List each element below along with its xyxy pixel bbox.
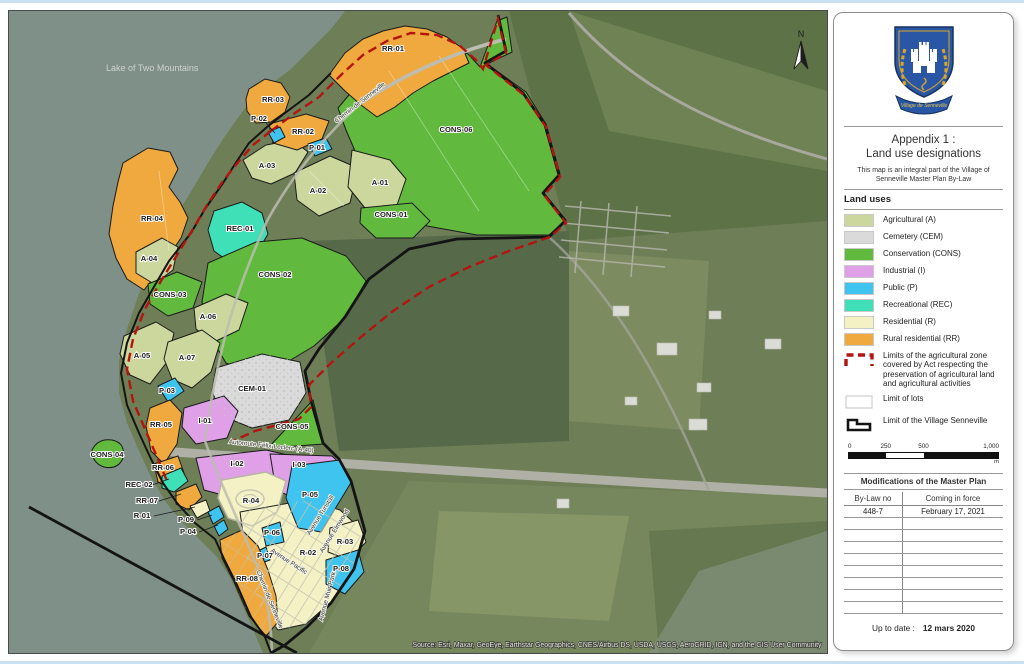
zone-label-R-01: R-01 (134, 511, 151, 520)
table-cell (844, 602, 902, 614)
zone-label-A-06: A-06 (200, 312, 216, 321)
map-subtitle: This map is an integral part of the Vill… (848, 167, 999, 185)
zone-label-A-02: A-02 (310, 186, 326, 195)
scale-segment (849, 453, 886, 458)
zone-label-R-04: R-04 (243, 496, 260, 505)
table-cell (902, 554, 1003, 566)
legend-label: Recreational (REC) (883, 299, 952, 310)
legend-label: Residential (R) (883, 316, 936, 327)
zone-label-RR-01: RR-01 (382, 44, 405, 53)
legend-swatch-lot_line (844, 393, 874, 411)
zone-label-RR-08: RR-08 (236, 574, 258, 583)
zone-label-RR-04: RR-04 (141, 214, 164, 223)
table-cell (902, 542, 1003, 554)
senneville-coat-of-arms: Village de Senneville (844, 23, 1003, 122)
zone-label-A-03: A-03 (259, 161, 275, 170)
legend-swatch-agri_limit (844, 350, 874, 368)
svg-text:N: N (798, 29, 805, 39)
scale-segment (924, 453, 999, 458)
table-cell (902, 518, 1003, 530)
zone-label-P-05: P-05 (302, 490, 319, 499)
table-cell (844, 590, 902, 602)
scale-tick: 1,000 (983, 443, 999, 450)
table-cell (844, 578, 902, 590)
table-cell (844, 554, 902, 566)
legend-label: Limits of the agricultural zone covered … (883, 350, 1003, 389)
table-row (844, 578, 1003, 590)
zone-label-P-03: P-03 (159, 386, 175, 395)
zone-label-P-06: P-06 (264, 528, 280, 537)
land-uses-heading: Land uses (844, 194, 1003, 205)
table-cell (844, 566, 902, 578)
legend-item-industrial: Industrial (I) (844, 265, 1003, 278)
divider (844, 126, 1003, 127)
legend-label: Limit of lots (883, 393, 923, 404)
zone-label-CEM-01: CEM-01 (238, 384, 267, 393)
scale-bar-line (848, 452, 999, 459)
zone-label-CONS-05: CONS-05 (276, 422, 310, 431)
table-row: 448-7February 17, 2021 (844, 506, 1003, 518)
zone-label-R-02: R-02 (300, 548, 316, 557)
land-use-map: RR-01RR-03P-02RR-02P-01A-03A-02A-01CONS-… (9, 11, 827, 653)
divider (844, 189, 1003, 190)
legend-swatch (844, 231, 874, 244)
table-cell: February 17, 2021 (902, 506, 1003, 518)
table-row (844, 566, 1003, 578)
legend-item-rural: Rural residential (RR) (844, 333, 1003, 346)
table-cell (844, 518, 902, 530)
legend-swatch-village_limit (844, 415, 874, 433)
zone-label-P-04: P-04 (180, 527, 197, 536)
zone-label-A-05: A-05 (134, 351, 151, 360)
zone-label-RR-03: RR-03 (262, 95, 284, 104)
table-row (844, 590, 1003, 602)
zone-label-REC-01: REC-01 (226, 224, 254, 233)
zone-label-CONS-06: CONS-06 (440, 125, 473, 134)
up-to-date: Up to date :12 mars 2020 (844, 623, 1003, 633)
table-cell (902, 590, 1003, 602)
table-cell: 448-7 (844, 506, 902, 518)
legend-list: Agricultural (A)Cemetery (CEM)Conservati… (844, 214, 1003, 433)
legend-swatch (844, 316, 874, 329)
map-canvas: RR-01RR-03P-02RR-02P-01A-03A-02A-01CONS-… (8, 10, 828, 654)
legend-item-residential: Residential (R) (844, 316, 1003, 329)
lake-label: Lake of Two Mountains (106, 63, 199, 73)
legend-label: Industrial (I) (883, 265, 925, 276)
zone-label-CONS-04: CONS-04 (91, 450, 125, 459)
zone-label-A-04: A-04 (141, 254, 158, 263)
modifications-title: Modifications of the Master Plan (844, 473, 1003, 490)
legend-label: Cemetery (CEM) (883, 231, 943, 242)
zone-label-I-01: I-01 (198, 416, 212, 425)
zone-label-CONS-01: CONS-01 (375, 210, 409, 219)
table-row (844, 554, 1003, 566)
table-cell (902, 602, 1003, 614)
modifications-table: By-Law no Coming in force 448-7February … (844, 492, 1003, 614)
legend-item-lot_line: Limit of lots (844, 393, 1003, 411)
zone-label-A-01: A-01 (372, 178, 389, 187)
zone-label-RR-07: RR-07 (136, 496, 158, 505)
legend-swatch (844, 299, 874, 312)
scale-unit: m (848, 459, 999, 465)
legend-item-conservation: Conservation (CONS) (844, 248, 1003, 261)
zone-label-A-07: A-07 (179, 353, 195, 362)
scale-tick: 250 (880, 443, 891, 450)
table-cell (902, 578, 1003, 590)
legend-swatch (844, 265, 874, 278)
table-cell (844, 530, 902, 542)
modifications-section: Modifications of the Master Plan By-Law … (844, 473, 1003, 614)
table-row (844, 530, 1003, 542)
scale-segment (886, 453, 923, 458)
legend-panel: Village de Senneville Appendix 1 : Land … (833, 12, 1014, 651)
legend-swatch (844, 214, 874, 227)
legend-label: Agricultural (A) (883, 214, 936, 225)
zone-label-RR-06: RR-06 (152, 463, 174, 472)
zone-label-P-09: P-09 (178, 515, 194, 524)
legend-item-cemetery: Cemetery (CEM) (844, 231, 1003, 244)
zone-label-P-02: P-02 (251, 114, 267, 123)
zone-label-R-03: R-03 (337, 537, 353, 546)
table-cell (902, 566, 1003, 578)
table-cell (902, 530, 1003, 542)
legend-item-village_limit: Limit of the Village Senneville (844, 415, 1003, 433)
scale-tick: 500 (918, 443, 929, 450)
column-bylaw: By-Law no (844, 492, 902, 506)
zone-label-CONS-03: CONS-03 (154, 290, 187, 299)
scale-tick-labels: 02505001,000 (848, 443, 999, 452)
zone-label-P-08: P-08 (333, 564, 349, 573)
zone-label-I-02: I-02 (230, 459, 243, 468)
legend-swatch (844, 248, 874, 261)
legend-label: Rural residential (RR) (883, 333, 960, 344)
zone-label-RR-05: RR-05 (150, 420, 173, 429)
window-edge-top (0, 0, 1024, 3)
scale-bar: 02505001,000 m (848, 443, 999, 465)
zone-label-I-03: I-03 (292, 460, 305, 469)
zone-label-CONS-02: CONS-02 (259, 270, 292, 279)
legend-item-agricultural: Agricultural (A) (844, 214, 1003, 227)
legend-swatch (844, 333, 874, 346)
zone-label-P-01: P-01 (309, 143, 326, 152)
zone-label-RR-02: RR-02 (292, 127, 314, 136)
table-row (844, 602, 1003, 614)
legend-label: Limit of the Village Senneville (883, 415, 987, 426)
legend-label: Conservation (CONS) (883, 248, 961, 259)
table-cell (844, 542, 902, 554)
crest-banner-text: Village de Senneville (900, 103, 947, 109)
legend-item-recreational: Recreational (REC) (844, 299, 1003, 312)
table-row (844, 518, 1003, 530)
legend-item-agri_limit: Limits of the agricultural zone covered … (844, 350, 1003, 389)
scale-tick: 0 (848, 443, 852, 450)
legend-label: Public (P) (883, 282, 918, 293)
table-row (844, 542, 1003, 554)
page-title: Appendix 1 : Land use designations (844, 133, 1003, 162)
map-attribution: Source: Esri, Maxar, GeoEye, Earthstar G… (413, 642, 823, 649)
divider (844, 209, 1003, 210)
legend-swatch (844, 282, 874, 295)
column-coming-in-force: Coming in force (902, 492, 1003, 506)
legend-item-public: Public (P) (844, 282, 1003, 295)
zone-label-REC-02: REC-02 (125, 480, 152, 489)
